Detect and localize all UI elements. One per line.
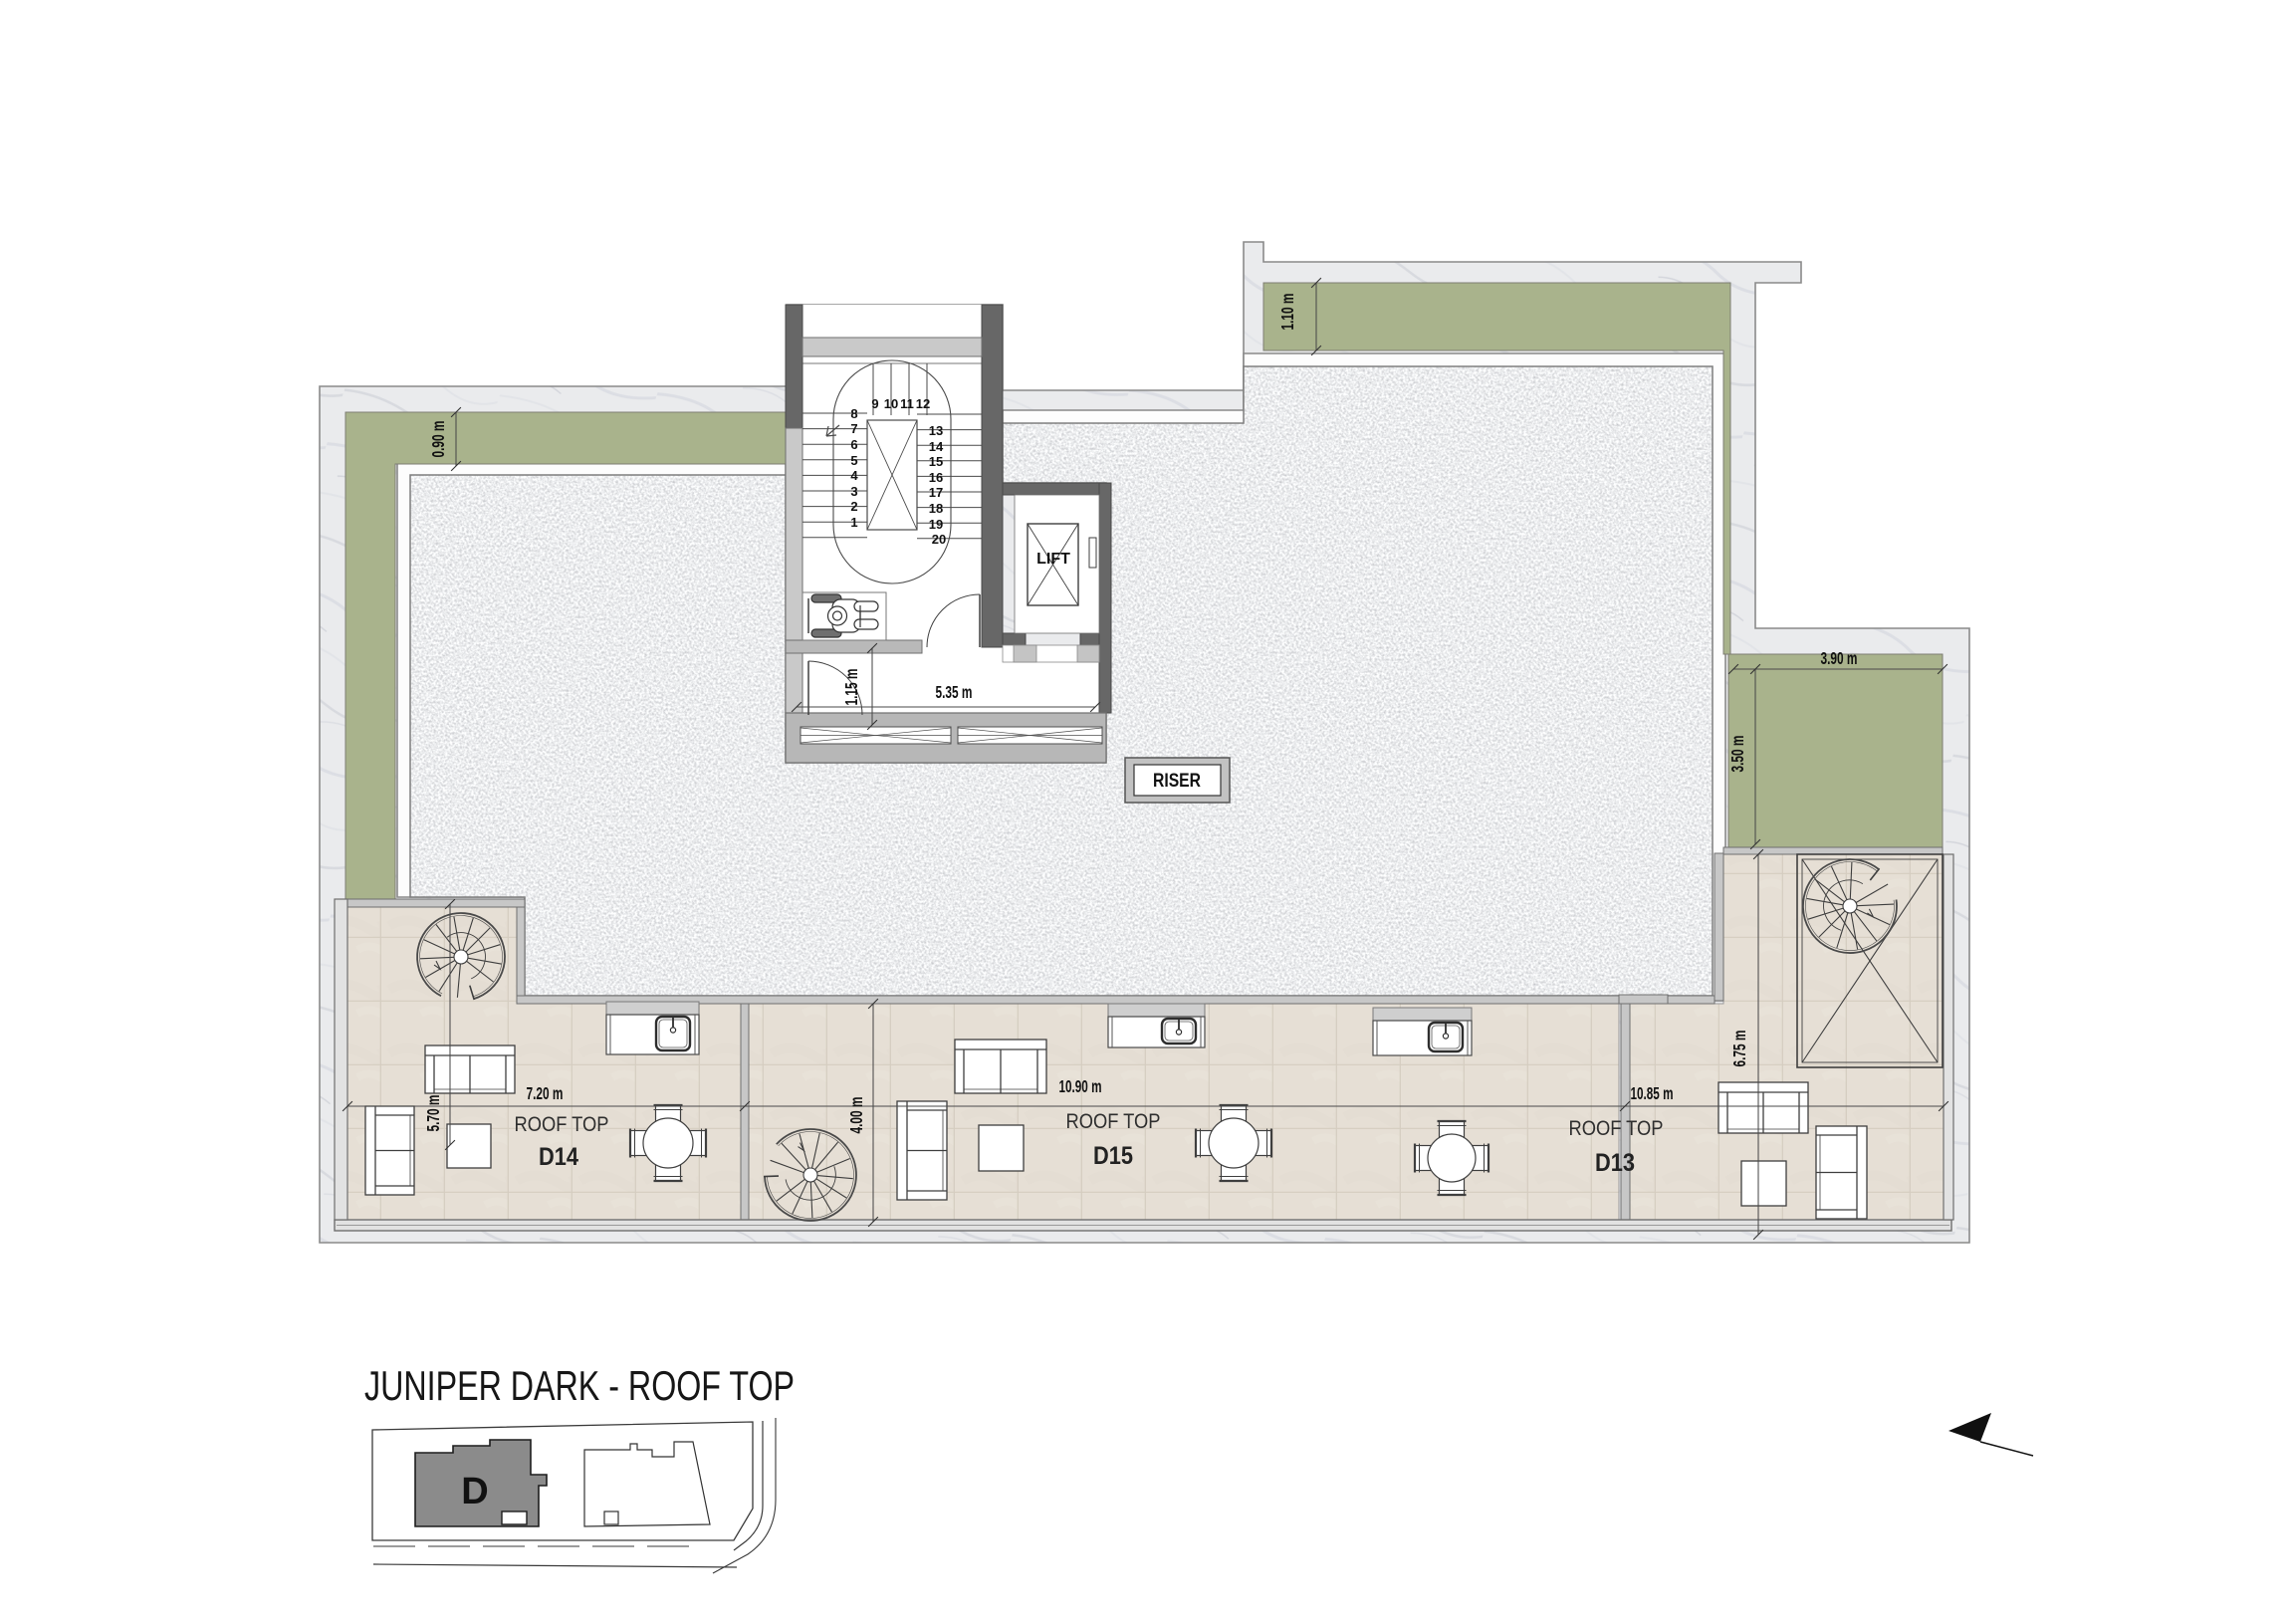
svg-text:13: 13 xyxy=(929,423,943,438)
svg-text:5: 5 xyxy=(850,453,857,468)
svg-text:D: D xyxy=(461,1471,488,1512)
svg-text:6.75 m: 6.75 m xyxy=(1729,1031,1749,1067)
svg-text:9: 9 xyxy=(871,396,878,411)
svg-text:20: 20 xyxy=(932,532,946,547)
svg-text:10.85 m: 10.85 m xyxy=(1631,1083,1674,1103)
svg-text:ROOF TOP: ROOF TOP xyxy=(1066,1110,1161,1133)
svg-text:RISER: RISER xyxy=(1153,771,1201,792)
svg-text:0.90 m: 0.90 m xyxy=(428,421,448,458)
svg-text:10.90 m: 10.90 m xyxy=(1059,1076,1102,1096)
svg-text:5.70 m: 5.70 m xyxy=(423,1095,443,1132)
svg-text:3: 3 xyxy=(850,484,857,499)
svg-text:1: 1 xyxy=(850,515,857,530)
svg-text:14: 14 xyxy=(929,439,944,454)
svg-text:D13: D13 xyxy=(1595,1149,1635,1177)
svg-text:4: 4 xyxy=(850,468,858,483)
svg-text:1.15 m: 1.15 m xyxy=(841,669,861,706)
svg-text:3.50 m: 3.50 m xyxy=(1727,736,1747,773)
svg-text:2: 2 xyxy=(850,499,857,514)
svg-text:7: 7 xyxy=(850,421,857,436)
svg-text:7.20 m: 7.20 m xyxy=(527,1083,564,1103)
svg-text:10: 10 xyxy=(884,396,898,411)
svg-text:8: 8 xyxy=(850,406,857,421)
svg-text:D15: D15 xyxy=(1093,1142,1133,1170)
svg-text:ROOF TOP: ROOF TOP xyxy=(515,1113,609,1136)
svg-text:16: 16 xyxy=(929,470,943,485)
svg-text:4.00 m: 4.00 m xyxy=(846,1097,866,1134)
svg-text:3.90 m: 3.90 m xyxy=(1821,648,1858,668)
svg-text:18: 18 xyxy=(929,501,943,516)
svg-text:JUNIPER DARK - ROOF TOP: JUNIPER DARK - ROOF TOP xyxy=(364,1362,795,1409)
svg-text:D14: D14 xyxy=(539,1143,578,1171)
svg-text:12: 12 xyxy=(916,396,930,411)
svg-text:5.35 m: 5.35 m xyxy=(936,682,973,702)
svg-text:19: 19 xyxy=(929,517,943,532)
svg-text:ROOF TOP: ROOF TOP xyxy=(1569,1117,1664,1140)
svg-text:11: 11 xyxy=(900,396,914,411)
svg-text:1.10 m: 1.10 m xyxy=(1277,294,1297,331)
svg-text:LIFT: LIFT xyxy=(1036,551,1070,568)
svg-text:17: 17 xyxy=(929,485,943,500)
svg-text:6: 6 xyxy=(850,437,857,452)
svg-text:15: 15 xyxy=(929,454,943,469)
